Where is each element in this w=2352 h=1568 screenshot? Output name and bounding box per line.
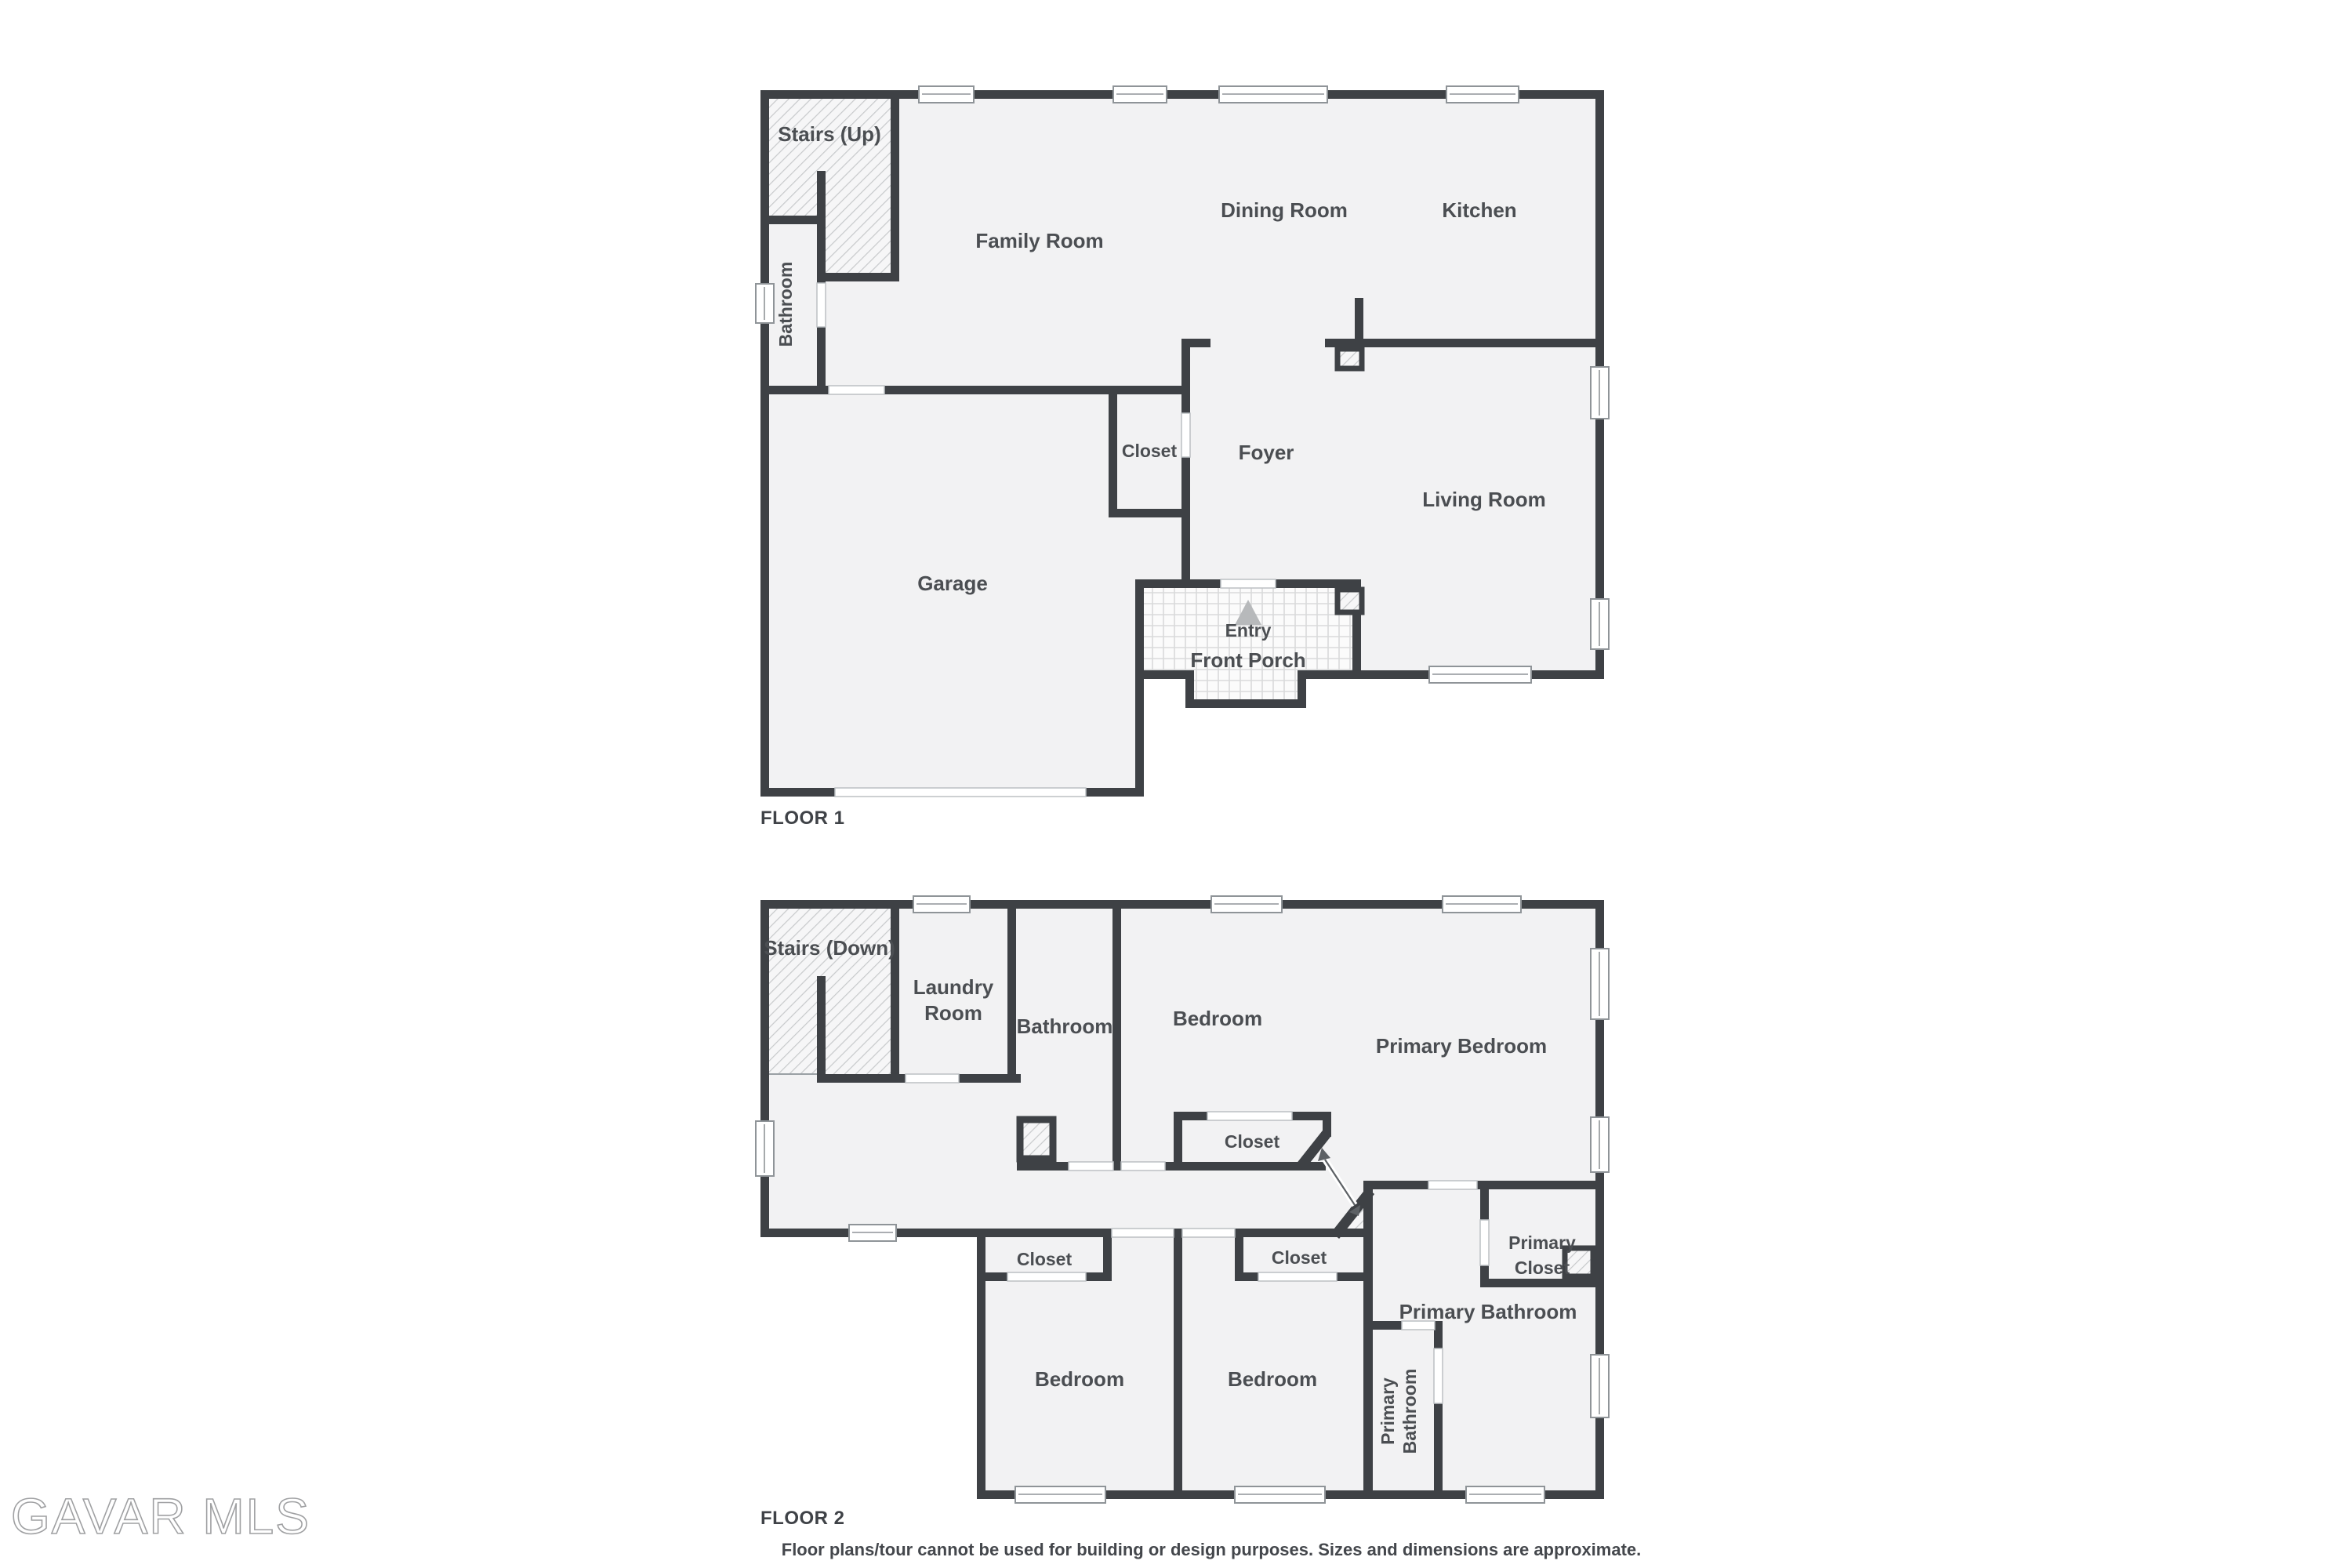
- window: [1591, 1355, 1609, 1417]
- room-label-laundry-line1: Laundry: [913, 975, 994, 999]
- wall-segment: [1109, 509, 1190, 517]
- wall-segment: [1112, 900, 1121, 1171]
- wall-segment: [1325, 339, 1604, 347]
- wall-segment: [977, 1229, 985, 1499]
- window: [756, 284, 774, 323]
- wall-segment: [891, 900, 899, 1083]
- wall-segment: [1109, 394, 1117, 517]
- door-opening: [1112, 1229, 1174, 1237]
- room-label-bedroom-top: Bedroom: [1173, 1007, 1262, 1030]
- wall-segment: [891, 90, 899, 281]
- floor-plan-canvas: Stairs (Up) Bathroom Family Room Dining …: [0, 0, 2352, 1568]
- door-opening: [1007, 1272, 1086, 1281]
- floor1-tag: FLOOR 1: [760, 808, 845, 829]
- floor1-plan: Stairs (Up) Bathroom Family Room Dining …: [756, 86, 1609, 829]
- wall-segment: [760, 1229, 1112, 1237]
- door-opening: [1428, 1181, 1477, 1189]
- window: [1591, 949, 1609, 1019]
- door-opening: [1121, 1162, 1165, 1171]
- wall-segment: [1135, 579, 1144, 797]
- room-label-bedroom-mid: Bedroom: [1228, 1367, 1317, 1391]
- wall-segment: [817, 976, 826, 1083]
- room-label-primary-closet-line2: Closet: [1515, 1258, 1570, 1278]
- wall-segment: [817, 171, 826, 393]
- garage-door-opening: [835, 788, 1086, 797]
- wall-segment: [760, 90, 769, 797]
- wall-segment: [1181, 339, 1210, 347]
- window: [1113, 86, 1167, 103]
- wall-segment: [1363, 1187, 1373, 1490]
- room-label-front-porch: Front Porch: [1190, 648, 1305, 672]
- window: [1211, 896, 1282, 913]
- window: [849, 1225, 896, 1241]
- room-label-closet-mid: Closet: [1272, 1247, 1327, 1268]
- window: [919, 86, 974, 103]
- disclaimer-text: Floor plans/tour cannot be used for buil…: [782, 1540, 1642, 1559]
- door-opening: [1182, 1229, 1235, 1237]
- window: [1219, 86, 1327, 103]
- room-label-stairs-up: Stairs (Up): [778, 122, 880, 146]
- room-label-foyer: Foyer: [1239, 441, 1294, 464]
- wall-segment: [1480, 1279, 1604, 1287]
- floor-plan-page: Stairs (Up) Bathroom Family Room Dining …: [0, 0, 2352, 1568]
- window: [1591, 1117, 1609, 1172]
- stairs-down-hatch-region: [769, 909, 891, 1074]
- wall-segment: [1135, 670, 1194, 679]
- door-opening: [829, 386, 884, 394]
- wall-segment: [1355, 298, 1363, 347]
- room-label-primary-bathroom-small-line2: Bathroom: [1399, 1369, 1420, 1454]
- room-label-kitchen: Kitchen: [1442, 198, 1516, 222]
- door-opening: [906, 1074, 959, 1083]
- room-label-closet-center: Closet: [1225, 1131, 1280, 1152]
- wall-segment: [1181, 339, 1190, 579]
- wall-segment: [760, 216, 817, 224]
- front-porch-step-tile-region: [1194, 670, 1298, 699]
- wall-segment: [1434, 1321, 1443, 1490]
- room-label-laundry-line2: Room: [924, 1001, 982, 1025]
- window: [1466, 1486, 1544, 1503]
- window: [1429, 666, 1531, 683]
- wall-segment: [1174, 1112, 1182, 1171]
- wall-segment: [1235, 1229, 1363, 1237]
- window: [1443, 896, 1521, 913]
- door-opening: [1480, 1220, 1489, 1265]
- wall-segment: [1185, 699, 1306, 708]
- wall-segment: [1007, 900, 1016, 1083]
- room-label-entry: Entry: [1225, 620, 1272, 641]
- room-label-closet: Closet: [1122, 441, 1178, 461]
- window: [1591, 599, 1609, 649]
- room-label-stairs-down: Stairs (Down): [764, 936, 895, 960]
- floor2-tag: FLOOR 2: [760, 1508, 845, 1529]
- room-label-garage: Garage: [917, 572, 988, 595]
- window: [1591, 367, 1609, 419]
- wall-segment: [826, 273, 899, 281]
- wall-segment: [1363, 1181, 1604, 1189]
- window: [756, 1121, 774, 1176]
- room-label-primary-bedroom: Primary Bedroom: [1376, 1034, 1547, 1058]
- room-label-dining-room: Dining Room: [1221, 198, 1348, 222]
- room-label-bathroom: Bathroom: [775, 262, 796, 347]
- wall-segment: [1298, 670, 1361, 679]
- door-opening: [1207, 1112, 1292, 1120]
- room-label-closet-left: Closet: [1017, 1249, 1073, 1269]
- window: [1015, 1486, 1105, 1503]
- door-opening: [1258, 1272, 1337, 1281]
- door-opening: [1434, 1348, 1443, 1403]
- front-door-opening: [1221, 579, 1276, 588]
- room-label-living-room: Living Room: [1422, 488, 1545, 511]
- shower-hatch-square: [1020, 1120, 1053, 1159]
- door-opening: [1181, 413, 1190, 457]
- floor2-plan: Stairs (Down) Laundry Room Bathroom Bedr…: [756, 896, 1609, 1529]
- room-label-primary-closet-line1: Primary: [1508, 1232, 1576, 1253]
- porch-pillar-hatch-square: [1338, 590, 1362, 612]
- door-opening: [1069, 1162, 1113, 1171]
- window: [1446, 86, 1519, 103]
- room-label-bathroom2: Bathroom: [1017, 1014, 1113, 1038]
- room-label-primary-bathroom: Primary Bathroom: [1399, 1300, 1577, 1323]
- room-label-family-room: Family Room: [975, 229, 1103, 252]
- window: [913, 896, 970, 913]
- room-label-bedroom-left: Bedroom: [1035, 1367, 1124, 1391]
- room-label-primary-bathroom-small-line1: Primary: [1377, 1377, 1398, 1445]
- kitchen-appliance-hatch-square: [1338, 349, 1362, 368]
- door-opening: [817, 283, 826, 327]
- wall-segment: [1174, 1229, 1182, 1499]
- window: [1235, 1486, 1325, 1503]
- watermark: GAVAR MLS: [11, 1488, 310, 1544]
